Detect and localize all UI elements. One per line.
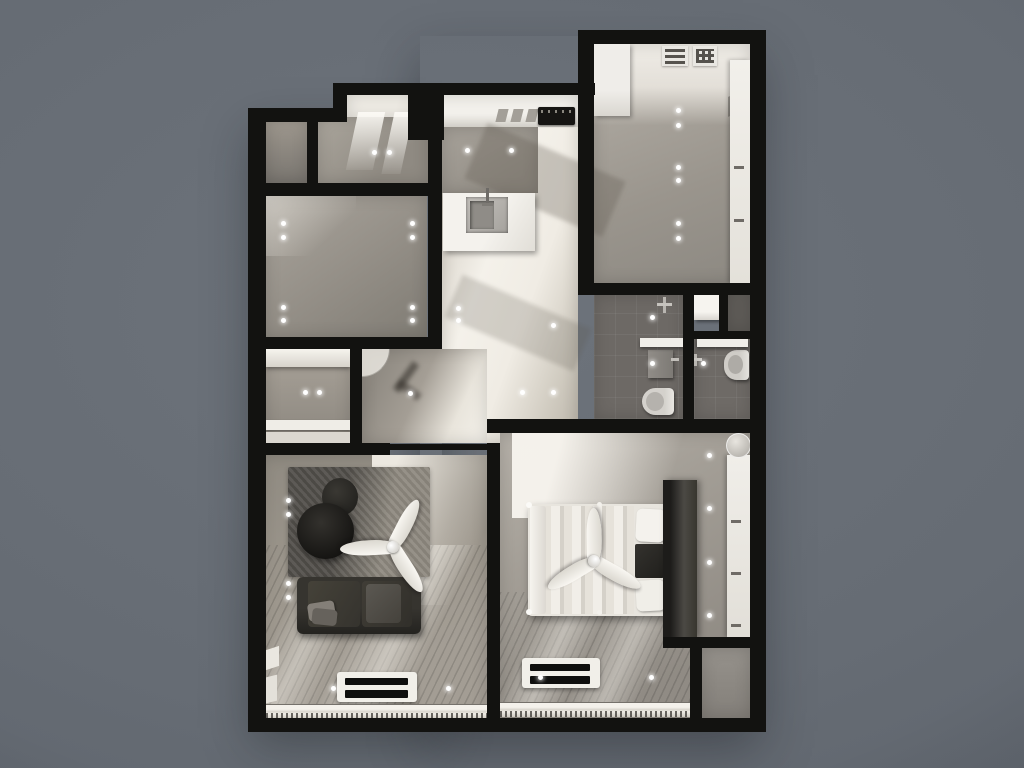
downlight <box>410 305 415 310</box>
toilet-second-seat <box>728 355 743 374</box>
wall-bath-divider <box>683 288 694 422</box>
large-room-floor <box>266 196 427 337</box>
headboard-partition <box>663 480 697 638</box>
downlight <box>281 235 286 240</box>
bed-dark-throw <box>635 544 664 578</box>
wardrobe-handle <box>731 624 741 627</box>
downlight <box>446 686 451 691</box>
bathroom-main-counter <box>640 338 684 347</box>
bathroom-second-counter <box>697 339 748 347</box>
downlight <box>707 613 712 618</box>
service-nook-floor <box>702 648 750 718</box>
utility-wardrobe-doors <box>730 60 750 283</box>
wall-bath-bottom <box>487 419 766 433</box>
wall-utility-bottom <box>578 283 766 295</box>
media-console-slot <box>345 678 408 685</box>
vanity-faucet <box>671 358 679 361</box>
washer-top <box>662 46 688 66</box>
wall-living-top-thin <box>390 444 500 450</box>
downlight <box>707 506 712 511</box>
closet-lower-cabinet <box>266 420 350 430</box>
dryer-top <box>693 46 717 66</box>
downlight <box>676 178 681 183</box>
downlight <box>281 221 286 226</box>
downlight <box>465 148 470 153</box>
downlight <box>707 560 712 565</box>
bed-corner-cap <box>526 502 532 508</box>
wall-rooms-divider <box>307 117 318 189</box>
wardrobe-handle <box>731 520 741 523</box>
closet-upper-cabinet <box>266 349 350 367</box>
wall-showerbox <box>719 288 728 336</box>
living-balcony-railing <box>261 704 487 719</box>
glass-stool <box>726 433 751 458</box>
wall-closet-right <box>350 340 362 452</box>
wall-rooms-right <box>428 95 442 349</box>
wall-outer-bottom <box>248 718 766 732</box>
wall-utility-top <box>578 30 766 44</box>
kitchen-floor <box>442 127 538 193</box>
downlight <box>551 323 556 328</box>
downlight <box>286 512 291 517</box>
downlight <box>372 150 377 155</box>
downlight <box>286 498 291 503</box>
cooktop <box>538 107 575 125</box>
downlight <box>286 581 291 586</box>
wardrobe-handle <box>734 166 744 169</box>
bed-foot-roll <box>530 506 546 614</box>
bedroom-wardrobe-doors <box>727 455 750 637</box>
downlight <box>286 595 291 600</box>
downlight <box>317 390 322 395</box>
downlight <box>676 108 681 113</box>
curtain-panel <box>266 646 279 670</box>
downlight <box>410 235 415 240</box>
store-room-floor <box>266 117 307 183</box>
bedroom-balcony-railing <box>500 702 690 717</box>
wall-utility-left <box>578 30 594 295</box>
downlight <box>509 148 514 153</box>
downlight <box>456 306 461 311</box>
downlight <box>456 318 461 323</box>
downlight <box>410 318 415 323</box>
downlight <box>649 675 654 680</box>
downlight <box>650 361 655 366</box>
downlight <box>387 150 392 155</box>
downlight <box>410 221 415 226</box>
shower-tray <box>694 293 719 320</box>
wardrobe-handle <box>734 219 744 222</box>
toilet-main-seat <box>646 392 664 411</box>
bed-pillow <box>635 508 666 542</box>
bed-corner-cap <box>597 610 602 615</box>
downlight <box>676 123 681 128</box>
wall-outer-right <box>750 30 766 732</box>
wall-top-mid <box>333 83 595 95</box>
curtain-panel <box>266 675 277 704</box>
sink-faucet-spout <box>482 203 493 206</box>
downlight <box>650 315 655 320</box>
wall-nook-left <box>690 648 702 724</box>
downlight <box>281 318 286 323</box>
downlight <box>408 391 413 396</box>
downlight <box>331 686 336 691</box>
bed-corner-cap <box>597 502 602 507</box>
downlight <box>707 453 712 458</box>
wall-wardrobe-bottom <box>663 637 766 648</box>
downlight <box>676 165 681 170</box>
bed-corner-cap <box>526 609 532 615</box>
downlight <box>303 390 308 395</box>
downlight <box>538 675 543 680</box>
utility-tall-cabinet <box>594 44 630 116</box>
downlight <box>281 305 286 310</box>
sofa-throw <box>366 584 401 623</box>
wall-living-top <box>248 443 390 455</box>
downlight <box>701 361 706 366</box>
wardrobe-handle <box>731 572 741 575</box>
downlight <box>676 221 681 226</box>
wall-largeroom-bottom <box>248 337 442 349</box>
wall-rooms-bottom <box>248 183 442 196</box>
wall-bedroom-left <box>487 443 500 732</box>
wall-outer-left <box>248 108 266 732</box>
sofa-pillow <box>311 608 338 627</box>
media-console-slot <box>345 690 408 698</box>
ac-console-slot <box>530 664 590 671</box>
closet-lower-cabinet <box>266 432 350 443</box>
downlight <box>520 390 525 395</box>
floor-plan-render <box>0 0 1024 768</box>
downlight <box>676 236 681 241</box>
downlight <box>551 390 556 395</box>
shower-mixer-bar <box>657 303 672 306</box>
